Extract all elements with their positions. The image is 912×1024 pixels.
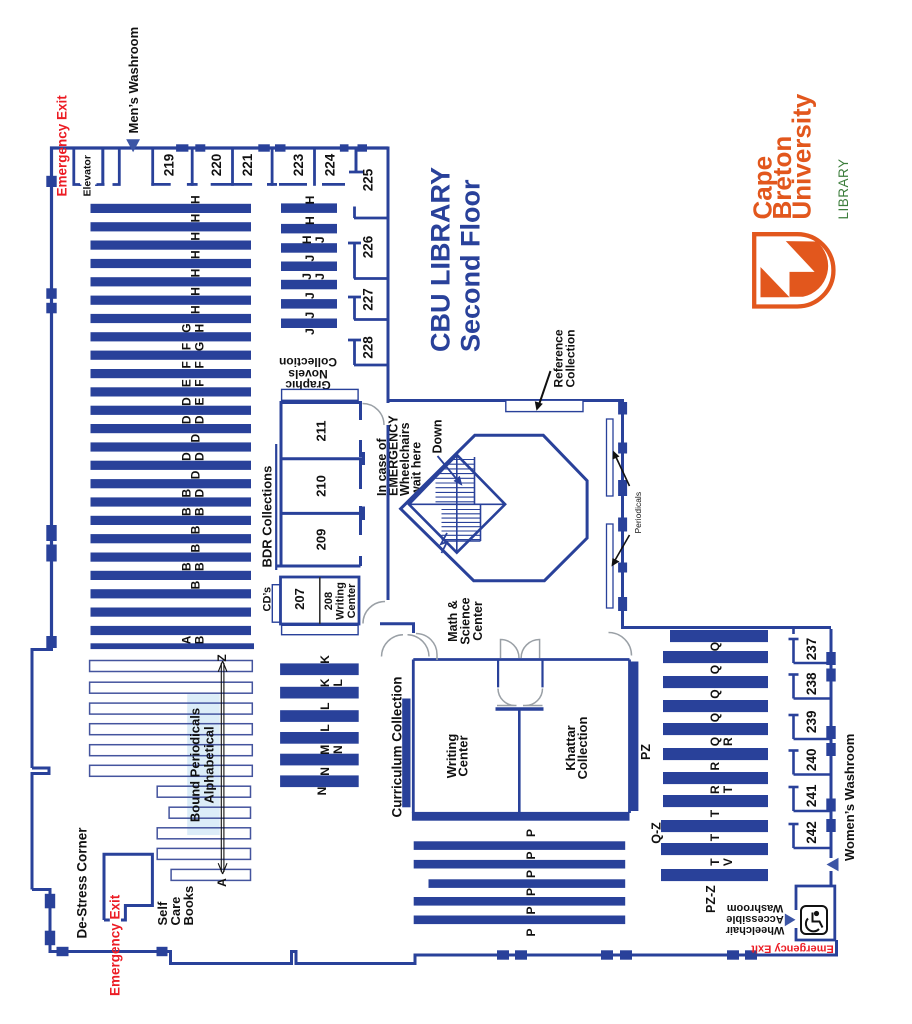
svg-text:D: D bbox=[180, 452, 194, 461]
svg-text:237: 237 bbox=[804, 638, 819, 661]
svg-text:P: P bbox=[524, 829, 538, 837]
svg-text:D: D bbox=[193, 452, 207, 461]
svg-text:H: H bbox=[189, 232, 203, 241]
svg-text:220: 220 bbox=[209, 154, 224, 177]
svg-text:Center: Center bbox=[471, 601, 485, 641]
svg-text:Q: Q bbox=[708, 642, 722, 651]
svg-text:N: N bbox=[331, 745, 345, 754]
svg-text:211: 211 bbox=[314, 421, 329, 442]
svg-text:H: H bbox=[189, 250, 203, 259]
svg-text:H: H bbox=[193, 324, 207, 333]
svg-text:L: L bbox=[318, 703, 332, 710]
svg-text:BDR Collections: BDR Collections bbox=[260, 466, 275, 568]
svg-text:F: F bbox=[180, 343, 194, 350]
svg-text:242: 242 bbox=[804, 821, 819, 844]
svg-text:N: N bbox=[315, 787, 329, 796]
svg-text:J: J bbox=[313, 236, 327, 243]
svg-text:T: T bbox=[708, 858, 722, 866]
svg-text:Emergency Exit: Emergency Exit bbox=[751, 943, 834, 955]
svg-text:R: R bbox=[708, 761, 722, 770]
svg-text:228: 228 bbox=[361, 336, 376, 359]
svg-text:Books: Books bbox=[181, 886, 196, 926]
svg-text:Alphabetical: Alphabetical bbox=[202, 726, 217, 803]
svg-text:Writing: Writing bbox=[335, 582, 347, 620]
svg-text:De-Stress Corner: De-Stress Corner bbox=[75, 827, 90, 939]
svg-text:M: M bbox=[318, 745, 332, 755]
svg-text:P: P bbox=[524, 928, 538, 936]
svg-text:J: J bbox=[303, 312, 317, 319]
svg-text:Collection: Collection bbox=[575, 717, 590, 780]
svg-text:F: F bbox=[193, 361, 207, 368]
svg-text:A: A bbox=[180, 635, 194, 644]
svg-text:B: B bbox=[193, 507, 207, 516]
svg-text:P: P bbox=[524, 851, 538, 859]
svg-text:E: E bbox=[193, 397, 207, 405]
svg-text:D: D bbox=[180, 397, 194, 406]
svg-text:T: T bbox=[721, 785, 735, 793]
svg-text:H: H bbox=[303, 196, 317, 205]
svg-text:G: G bbox=[193, 342, 207, 351]
svg-text:B: B bbox=[180, 562, 194, 571]
svg-text:208: 208 bbox=[323, 592, 335, 610]
svg-text:207: 207 bbox=[292, 588, 307, 610]
svg-text:210: 210 bbox=[314, 475, 329, 497]
svg-text:F: F bbox=[180, 361, 194, 368]
svg-text:T: T bbox=[708, 833, 722, 841]
svg-text:Q: Q bbox=[708, 713, 722, 722]
svg-text:Center: Center bbox=[456, 735, 471, 776]
svg-text:V: V bbox=[721, 858, 735, 866]
svg-text:T: T bbox=[708, 809, 722, 817]
svg-text:D: D bbox=[189, 434, 203, 443]
svg-text:Down: Down bbox=[431, 419, 445, 453]
svg-text:Elevator: Elevator bbox=[82, 155, 94, 196]
svg-text:F: F bbox=[193, 379, 207, 386]
svg-text:Q: Q bbox=[708, 737, 722, 746]
svg-text:P: P bbox=[524, 906, 538, 914]
svg-text:225: 225 bbox=[361, 168, 376, 191]
svg-text:B: B bbox=[189, 580, 203, 589]
svg-text:H: H bbox=[189, 195, 203, 204]
svg-text:239: 239 bbox=[804, 711, 819, 734]
svg-text:B: B bbox=[193, 562, 207, 571]
svg-text:E: E bbox=[180, 379, 194, 387]
svg-text:R: R bbox=[721, 737, 735, 746]
svg-text:Emergency Exit: Emergency Exit bbox=[108, 894, 123, 996]
svg-text:Washroom: Washroom bbox=[727, 902, 784, 914]
svg-text:223: 223 bbox=[291, 153, 306, 176]
svg-text:D: D bbox=[193, 415, 207, 424]
svg-text:B: B bbox=[193, 635, 207, 644]
svg-text:224: 224 bbox=[323, 153, 338, 176]
svg-text:227: 227 bbox=[361, 288, 376, 311]
svg-text:CD’s: CD’s bbox=[262, 587, 274, 612]
svg-text:N: N bbox=[318, 767, 332, 776]
svg-text:LIBRARY: LIBRARY bbox=[836, 158, 851, 219]
svg-text:Periodicals: Periodicals bbox=[633, 492, 643, 534]
svg-text:209: 209 bbox=[314, 529, 329, 551]
svg-text:B: B bbox=[189, 525, 203, 534]
svg-text:Center: Center bbox=[346, 583, 358, 619]
svg-text:221: 221 bbox=[240, 153, 255, 176]
svg-text:B: B bbox=[180, 507, 194, 516]
svg-text:PZ: PZ bbox=[639, 744, 653, 760]
svg-text:H: H bbox=[300, 235, 314, 244]
svg-text:B: B bbox=[189, 544, 203, 553]
svg-text:A: A bbox=[215, 878, 229, 887]
svg-text:Q: Q bbox=[708, 689, 722, 698]
svg-text:H: H bbox=[189, 305, 203, 314]
svg-text:J: J bbox=[313, 273, 327, 280]
svg-text:K: K bbox=[318, 678, 332, 687]
svg-text:B: B bbox=[180, 489, 194, 498]
svg-text:P: P bbox=[524, 870, 538, 878]
svg-text:Curriculum Collection: Curriculum Collection bbox=[390, 676, 405, 817]
svg-text:PZ-Z: PZ-Z bbox=[704, 885, 718, 913]
svg-text:219: 219 bbox=[162, 154, 177, 177]
svg-text:J: J bbox=[303, 328, 317, 335]
svg-text:Emergency Exit: Emergency Exit bbox=[55, 95, 70, 197]
svg-text:Second Floor: Second Floor bbox=[456, 179, 486, 352]
svg-text:D: D bbox=[193, 489, 207, 498]
svg-text:J: J bbox=[303, 292, 317, 299]
svg-text:Collection: Collection bbox=[279, 355, 337, 369]
svg-text:240: 240 bbox=[804, 749, 819, 772]
svg-text:R: R bbox=[708, 785, 722, 794]
svg-text:L: L bbox=[331, 679, 345, 686]
svg-text:H: H bbox=[189, 269, 203, 278]
svg-text:J: J bbox=[303, 255, 317, 262]
svg-text:P: P bbox=[524, 888, 538, 896]
svg-text:H: H bbox=[303, 216, 317, 225]
svg-text:D: D bbox=[180, 415, 194, 424]
svg-text:241: 241 bbox=[804, 784, 819, 807]
svg-text:University: University bbox=[787, 93, 817, 219]
svg-text:G: G bbox=[180, 323, 194, 332]
svg-text:Collection: Collection bbox=[564, 329, 578, 387]
svg-text:Q: Q bbox=[708, 665, 722, 674]
svg-text:Bound Periodicals: Bound Periodicals bbox=[188, 708, 203, 822]
svg-text:K: K bbox=[318, 655, 332, 664]
svg-text:Women’s Washroom: Women’s Washroom bbox=[842, 734, 857, 861]
svg-text:D: D bbox=[189, 470, 203, 479]
svg-text:CBU LIBRARY: CBU LIBRARY bbox=[426, 167, 456, 352]
svg-text:Z: Z bbox=[215, 654, 229, 661]
svg-text:226: 226 bbox=[361, 235, 376, 258]
svg-text:L: L bbox=[318, 724, 332, 731]
svg-text:J: J bbox=[300, 273, 314, 280]
svg-text:H: H bbox=[189, 287, 203, 296]
svg-text:Men’s Washroom: Men’s Washroom bbox=[126, 27, 141, 134]
svg-text:238: 238 bbox=[804, 672, 819, 695]
svg-text:H: H bbox=[189, 214, 203, 223]
svg-text:Q-Z: Q-Z bbox=[650, 822, 664, 844]
